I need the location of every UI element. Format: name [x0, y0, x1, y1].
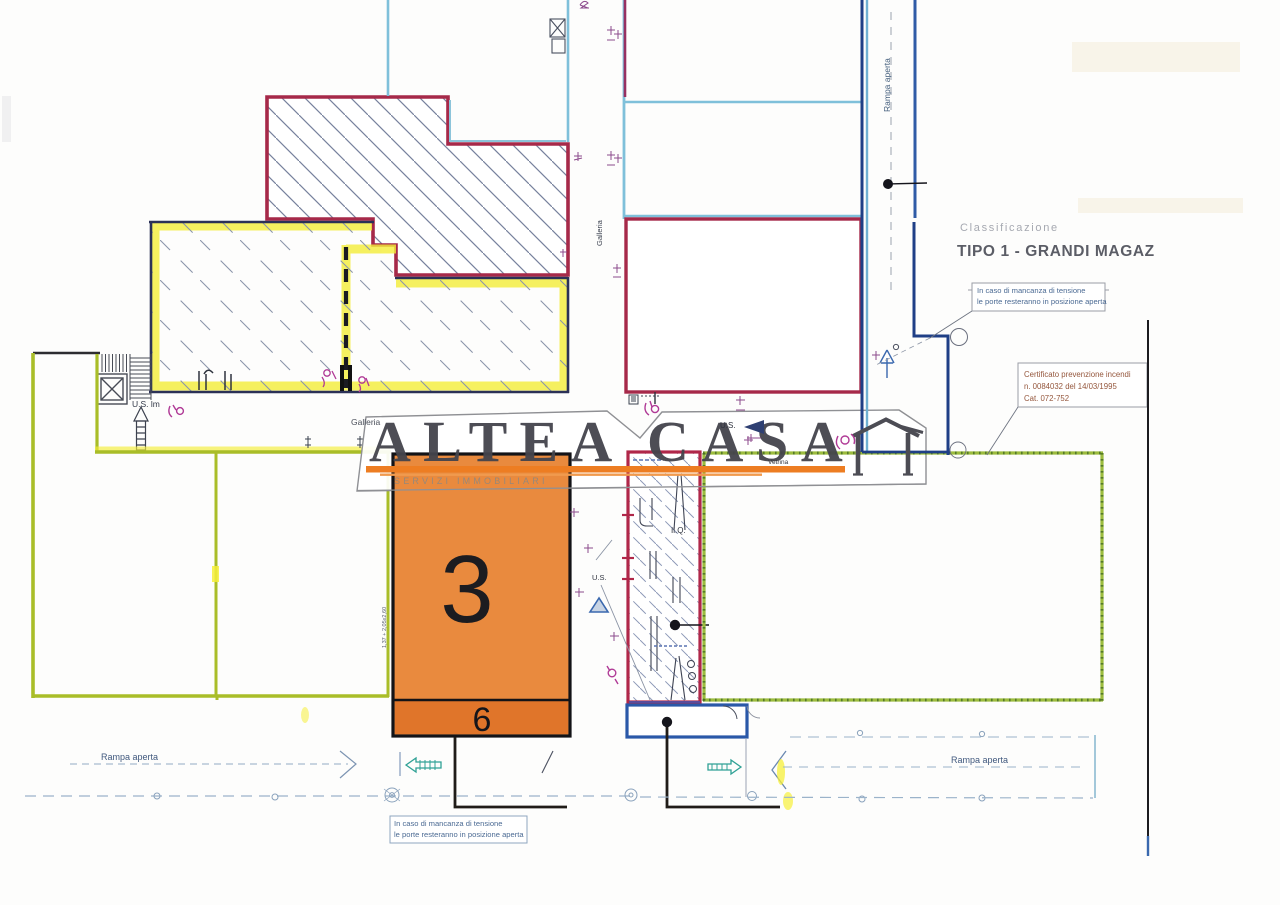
svg-text:U.S. lm: U.S. lm — [132, 399, 160, 409]
svg-text:In caso di mancanza di tension: In caso di mancanza di tensione — [394, 819, 503, 828]
svg-text:le porte resteranno in posizio: le porte resteranno in posizione aperta — [394, 830, 524, 839]
svg-text:In caso di mancanza di tension: In caso di mancanza di tensione — [977, 286, 1086, 295]
svg-text:3: 3 — [440, 536, 493, 643]
svg-text:U.S.: U.S. — [592, 573, 607, 582]
svg-text:Certificato prevenzione incend: Certificato prevenzione incendi — [1024, 370, 1131, 379]
svg-text:TIPO 1 - GRANDI MAGAZ: TIPO 1 - GRANDI MAGAZ — [957, 243, 1155, 260]
svg-text:U.S.: U.S. — [720, 421, 736, 430]
svg-text:Galleria: Galleria — [595, 219, 604, 246]
svg-text:Vetrina: Vetrina — [768, 459, 789, 466]
svg-text:ALTEA: ALTEA — [369, 409, 625, 474]
svg-text:Rampa aperta: Rampa aperta — [951, 755, 1008, 765]
svg-text:Cat. 072-752: Cat. 072-752 — [1024, 394, 1069, 403]
svg-text:le porte resteranno in posizio: le porte resteranno in posizione aperta — [977, 297, 1107, 306]
svg-text:6: 6 — [473, 701, 492, 739]
svg-text:Il.Q.: Il.Q. — [671, 526, 686, 535]
svg-text:SERVIZI IMMOBILIARI: SERVIZI IMMOBILIARI — [394, 476, 548, 486]
svg-text:1,37 + 2,05x2,60: 1,37 + 2,05x2,60 — [382, 607, 388, 648]
svg-text:Rampa aperta: Rampa aperta — [101, 752, 158, 762]
svg-text:n. 0084032 del 14/03/1995: n. 0084032 del 14/03/1995 — [1024, 382, 1117, 391]
svg-text:Classificazione: Classificazione — [960, 222, 1059, 234]
svg-text:Rampa aperta: Rampa aperta — [882, 58, 892, 112]
